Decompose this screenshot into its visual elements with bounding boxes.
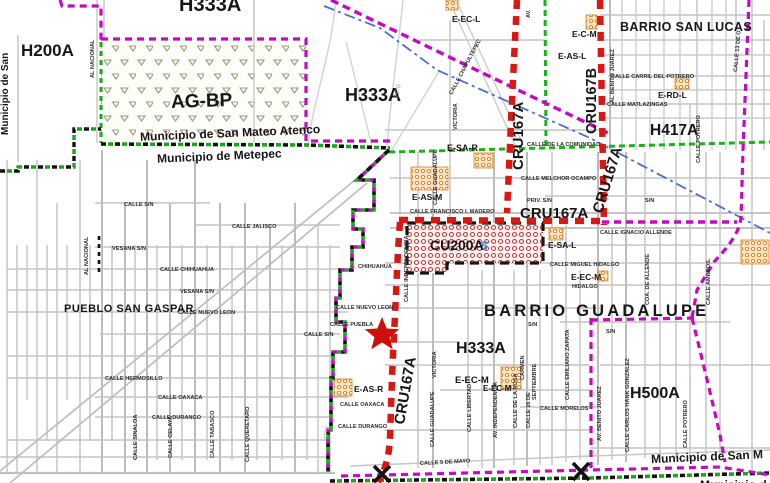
svg-text:CALLE DE LA ROSA: CALLE DE LA ROSA [513,374,519,429]
svg-text:CALLE POTRERO: CALLE POTRERO [696,114,702,163]
svg-text:CALLE MATLAZINGAS: CALLE MATLAZINGAS [607,102,668,108]
svg-text:CALLE MORELOS: CALLE MORELOS [540,406,589,412]
svg-text:CALLE GUADALUPE: CALLE GUADALUPE [430,391,436,447]
svg-text:CALLE GUADALUPE: CALLE GUADALUPE [433,149,439,205]
svg-text:H200A: H200A [21,41,74,60]
svg-text:CRU167A: CRU167A [510,101,527,170]
svg-text:CALLE S/N: CALLE S/N [304,332,334,338]
svg-text:CARMEN: CARMEN [520,355,526,380]
svg-text:HIDALGO: HIDALGO [572,284,598,290]
svg-text:AV. BENITO JUAREZ: AV. BENITO JUAREZ [597,386,603,441]
svg-text:CALLE CARRIL DEL POTRERO: CALLE CARRIL DEL POTRERO [611,74,695,80]
svg-text:CALLE EMILIANO ZAPATA: CALLE EMILIANO ZAPATA [565,329,571,400]
svg-text:CALLE S/N: CALLE S/N [124,202,154,208]
svg-text:CALLE IGNACIO ALLENDE: CALLE IGNACIO ALLENDE [600,230,672,236]
svg-text:CALLE OAXACA: CALLE OAXACA [158,395,202,401]
svg-text:CRU167A: CRU167A [520,205,589,222]
svg-text:CRU167B: CRU167B [584,68,600,134]
svg-text:VESANA S/N: VESANA S/N [180,289,214,295]
svg-text:E-SA-L: E-SA-L [548,240,576,250]
svg-text:H333A: H333A [456,340,506,357]
svg-text:COA. DE ALLENDE: COA. DE ALLENDE [645,254,651,305]
svg-text:CALLE INDEPENDENCIA: CALLE INDEPENDENCIA [404,235,410,302]
svg-text:CALLE DURANGO: CALLE DURANGO [152,415,202,421]
svg-text:Municipio d: Municipio d [700,478,767,483]
svg-text:S/N: S/N [528,322,537,328]
svg-text:CALLE DURANGO: CALLE DURANGO [338,424,388,430]
svg-text:CALLE NUEVO LEON: CALLE NUEVO LEON [178,310,235,316]
svg-text:AV.: AV. [526,9,532,18]
svg-text:VICTORIA: VICTORIA [453,103,459,130]
svg-text:Municipio de San: Municipio de San [0,53,11,135]
svg-text:CALLE LIBERTAD: CALLE LIBERTAD [467,384,473,432]
svg-text:CALLE DE LA COMUNIDAD: CALLE DE LA COMUNIDAD [527,142,600,148]
svg-text:VESANA S/N: VESANA S/N [112,246,146,252]
svg-text:CALLE PUEBLA: CALLE PUEBLA [330,322,373,328]
svg-text:CALLE MELCHOR OCAMPO: CALLE MELCHOR OCAMPO [521,176,597,182]
svg-text:S/N: S/N [606,329,615,335]
svg-text:CHIHUAHUA: CHIHUAHUA [358,264,392,270]
svg-text:CALLE CELAYA: CALLE CELAYA [168,416,174,458]
svg-text:SEPTIEMBRE: SEPTIEMBRE [532,363,538,400]
svg-text:H417A: H417A [650,122,698,139]
svg-text:CALLE CHIHUAHUA: CALLE CHIHUAHUA [160,267,214,273]
svg-text:CALLE MIGUEL HIDALGO: CALLE MIGUEL HIDALGO [550,262,620,268]
svg-text:H500A: H500A [630,385,680,402]
svg-text:PUEBLO SAN GASPAR: PUEBLO SAN GASPAR [64,303,194,315]
svg-text:CALLE CARLOS HANK GONZALEZ: CALLE CARLOS HANK GONZALEZ [625,358,631,452]
svg-text:CALLE NUEVO LEON: CALLE NUEVO LEON [336,305,393,311]
svg-text:AL NACIONAL: AL NACIONAL [84,236,90,275]
svg-text:E-AS-L: E-AS-L [558,51,586,61]
svg-text:CALLE POTRERO: CALLE POTRERO [683,399,689,448]
svg-text:CALLE HERMOSILLO: CALLE HERMOSILLO [105,376,163,382]
svg-text:CALLE JALISCO: CALLE JALISCO [232,224,277,230]
svg-text:CALLE SINALOA: CALLE SINALOA [133,415,139,460]
svg-text:CALLE QUERETARO: CALLE QUERETARO [245,406,251,462]
svg-text:BARRIO SAN LUCAS: BARRIO SAN LUCAS [620,20,752,34]
svg-text:CALLE TABASCO: CALLE TABASCO [210,410,216,458]
svg-text:PRIV. S/N: PRIV. S/N [527,198,552,204]
svg-text:E-C-M: E-C-M [572,29,597,39]
svg-text:S/N: S/N [645,198,654,204]
svg-text:BARRIO GUADALUPE: BARRIO GUADALUPE [484,302,709,320]
svg-text:E-EC-L: E-EC-L [452,14,480,24]
svg-text:H333A: H333A [179,0,241,16]
svg-text:E-EC-M: E-EC-M [571,272,601,282]
svg-text:E-RD-L: E-RD-L [658,90,687,100]
svg-text:CU200A: CU200A [430,237,484,253]
svg-text:CALLE FRANCISCO I. MADERO: CALLE FRANCISCO I. MADERO [410,209,495,215]
svg-text:CALLE OAXACA: CALLE OAXACA [340,402,384,408]
svg-text:AL NACIONAL: AL NACIONAL [90,39,96,78]
svg-text:H333A: H333A [345,85,401,105]
svg-text:VICTORIA: VICTORIA [432,351,438,378]
svg-text:E-SA-R: E-SA-R [447,143,478,153]
svg-text:CALLE AMBROS.: CALLE AMBROS. [706,258,712,305]
svg-text:AG-BP: AG-BP [171,90,233,113]
svg-text:AV. INDEPENDENCIA: AV. INDEPENDENCIA [493,382,499,438]
svg-text:E-AS-R: E-AS-R [354,384,383,394]
